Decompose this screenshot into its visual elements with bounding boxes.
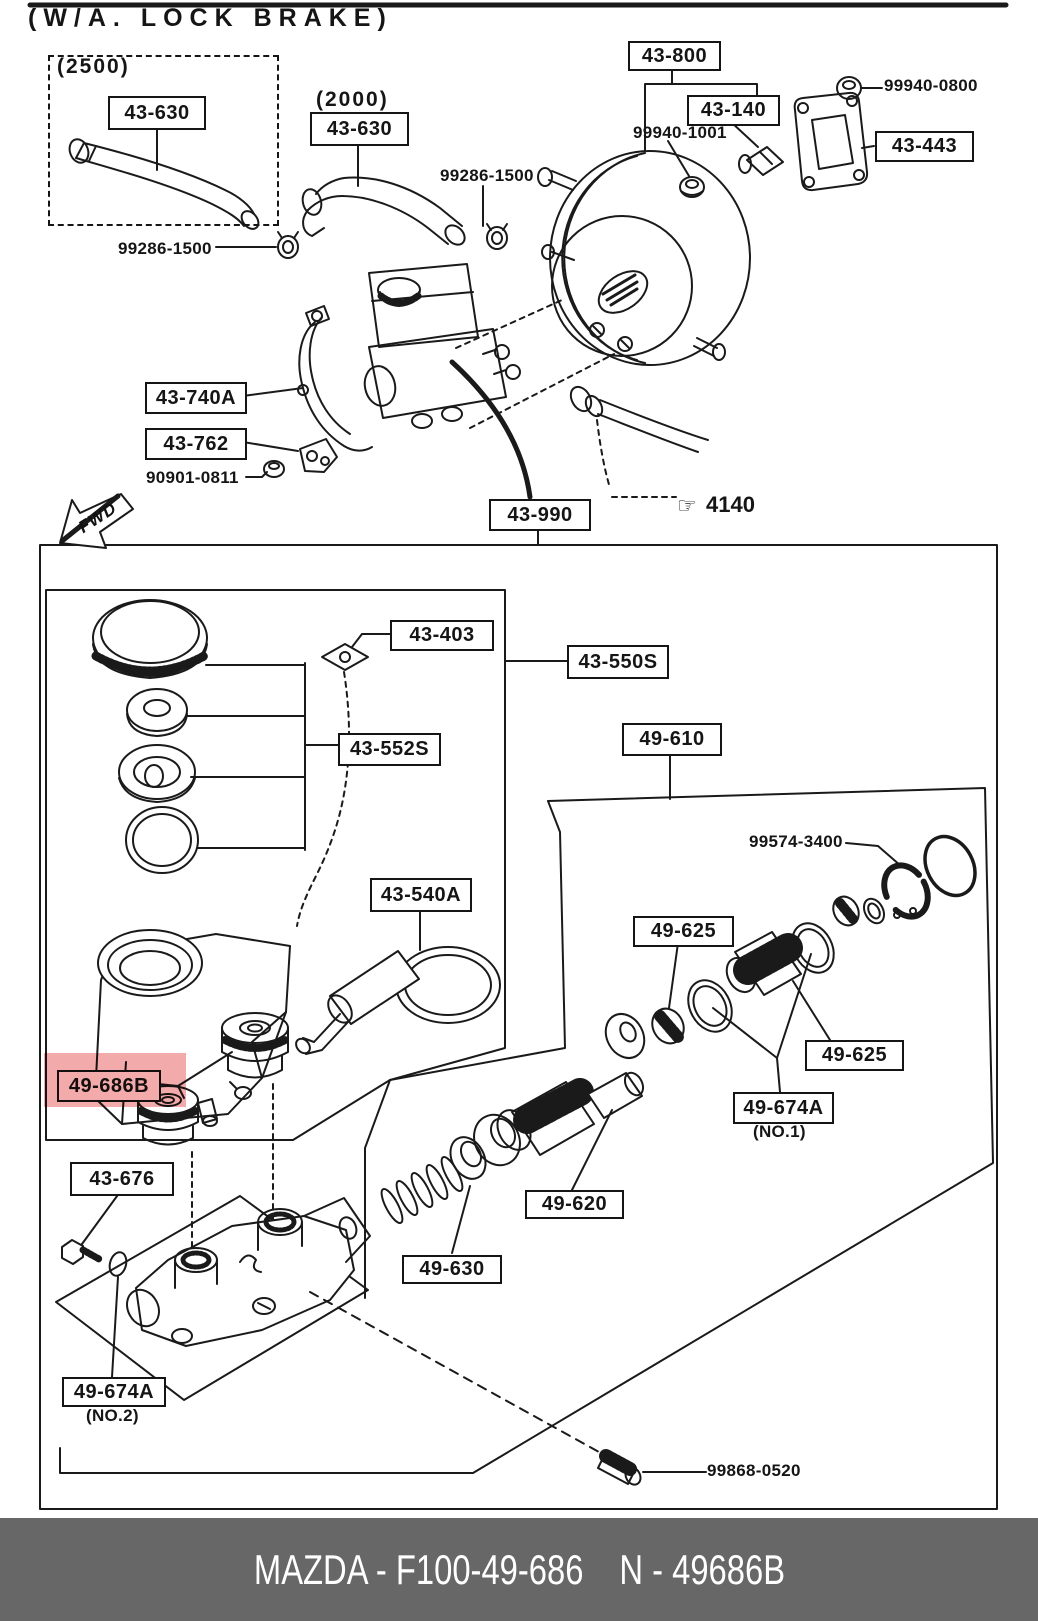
nut-99940-0800-drawing xyxy=(837,77,882,99)
footer-bar: MAZDA - F100-49-686 N - 49686B xyxy=(0,1518,1038,1621)
nut-90901-0811-drawing xyxy=(246,461,284,477)
diaphragm-drawing xyxy=(119,745,195,802)
part-label-99574-3400: 99574-3400 xyxy=(749,832,843,852)
snap-ring-drawing xyxy=(846,828,985,924)
part-label-49-610[interactable]: 49-610 xyxy=(622,723,722,756)
part-label-49-620[interactable]: 49-620 xyxy=(525,1190,624,1219)
variant-2000-label: (2000) xyxy=(316,88,389,112)
part-label-49-625-a[interactable]: 49-625 xyxy=(633,916,734,947)
part-label-90901-0811: 90901-0811 xyxy=(146,468,239,488)
leader-43-552s xyxy=(186,663,338,850)
brake-booster-drawing xyxy=(456,151,750,428)
pointing-hand-icon: ☞ xyxy=(677,493,697,519)
stay-43-762-drawing xyxy=(243,439,337,472)
vacuum-hose-4140-drawing xyxy=(567,383,708,497)
assembly-arc xyxy=(452,362,530,497)
part-label-43-762[interactable]: 43-762 xyxy=(145,428,247,460)
outer-box xyxy=(40,545,997,1509)
part-label-99868-0520: 99868-0520 xyxy=(707,1461,801,1481)
part-label-99286-1500-right: 99286-1500 xyxy=(440,166,534,186)
variant-2500-box xyxy=(48,55,279,226)
part-label-99940-0800: 99940-0800 xyxy=(884,76,978,96)
part-label-43-443[interactable]: 43-443 xyxy=(875,131,974,162)
part-label-no1: (NO.1) xyxy=(753,1122,806,1142)
master-cylinder-body-drawing xyxy=(56,1196,370,1400)
part-label-43-630-2000[interactable]: 43-630 xyxy=(310,112,409,146)
part-label-49-686b-highlighted[interactable]: 49-686B xyxy=(57,1070,161,1102)
part-label-43-550s[interactable]: 43-550S xyxy=(567,645,669,679)
part-label-49-674a-no2[interactable]: 49-674A xyxy=(62,1377,166,1407)
mounting-bracket-43-740a-drawing xyxy=(243,306,372,451)
part-label-4140[interactable]: 4140 xyxy=(706,492,755,518)
check-valve-drawing xyxy=(739,147,783,175)
master-cylinder-upper-drawing xyxy=(361,264,520,428)
hose-2000-drawing xyxy=(300,142,468,248)
part-label-43-403[interactable]: 43-403 xyxy=(390,620,494,651)
part-label-43-140[interactable]: 43-140 xyxy=(687,95,780,126)
parts-diagram-page: (W/A. LOCK BRAKE) (2500) (2000) 43-630 4… xyxy=(0,0,1038,1621)
page-title: (W/A. LOCK BRAKE) xyxy=(28,4,393,33)
nut-99940-1001-drawing xyxy=(668,141,704,197)
variant-2500-label: (2500) xyxy=(57,55,130,79)
part-label-43-740a[interactable]: 43-740A xyxy=(145,382,247,414)
part-label-99940-1001: 99940-1001 xyxy=(633,123,727,143)
footer-part-code: MAZDA - F100-49-686 xyxy=(253,1546,583,1594)
part-label-43-676[interactable]: 43-676 xyxy=(70,1162,174,1196)
part-label-43-540a[interactable]: 43-540A xyxy=(370,878,472,912)
part-label-49-625-b[interactable]: 49-625 xyxy=(805,1040,904,1071)
o-ring-drawing xyxy=(126,807,198,873)
seal-washer-drawing xyxy=(127,689,187,736)
part-label-no2: (NO.2) xyxy=(86,1406,139,1426)
part-label-99286-1500-left: 99286-1500 xyxy=(118,239,212,259)
screw-99868-drawing xyxy=(310,1292,706,1487)
clamp-tool-drawing xyxy=(293,908,500,1056)
part-label-43-552s[interactable]: 43-552S xyxy=(338,733,441,766)
reservoir-cap-drawing xyxy=(93,600,207,678)
footer-part-number: N - 49686B xyxy=(619,1546,785,1594)
part-label-49-674a-no1[interactable]: 49-674A xyxy=(733,1092,834,1124)
part-label-43-630-2500[interactable]: 43-630 xyxy=(108,96,206,130)
part-label-43-800[interactable]: 43-800 xyxy=(628,41,721,71)
part-label-43-990[interactable]: 43-990 xyxy=(489,499,591,531)
part-label-49-630[interactable]: 49-630 xyxy=(402,1255,502,1284)
gasket-43-443-drawing xyxy=(795,93,874,190)
piston-49-630-drawing xyxy=(378,1107,529,1253)
